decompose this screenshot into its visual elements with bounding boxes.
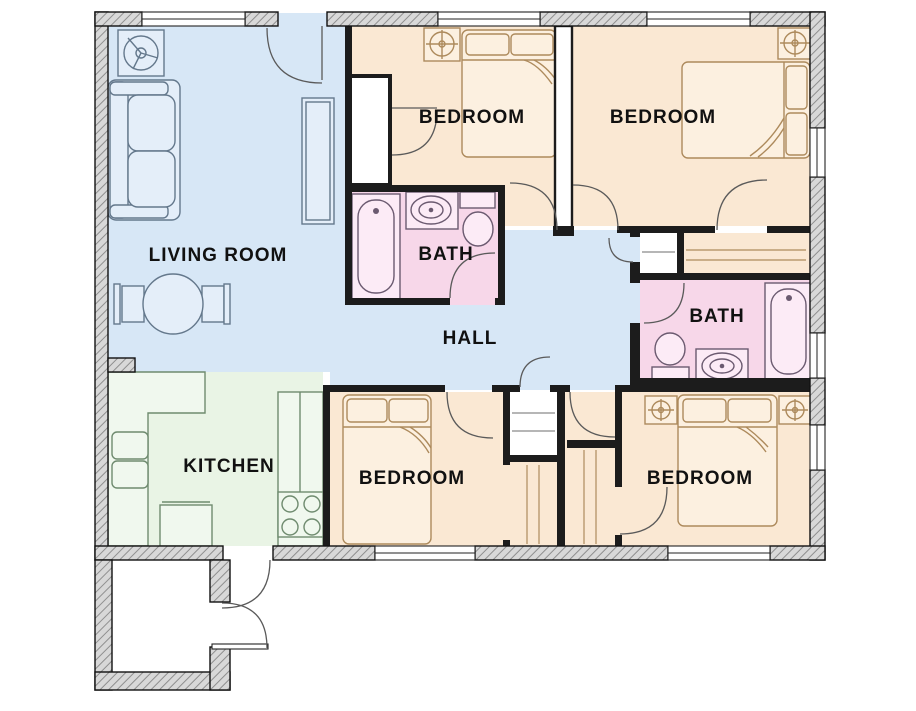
toilet — [652, 333, 689, 382]
cavity-wall — [555, 26, 572, 228]
stove-4-burners — [278, 492, 323, 537]
porch-door-arc — [222, 603, 267, 648]
kitchen-wall-stub — [108, 358, 135, 372]
bed — [678, 395, 777, 526]
bathtub — [352, 194, 400, 299]
nightstand-lamp-icon — [779, 396, 811, 424]
sofa — [108, 80, 180, 220]
toilet — [460, 192, 495, 246]
floor-plan-drawing: LIVING ROOM BEDROOM BEDROOM BATH BATH HA… — [0, 0, 916, 711]
living-room-label: LIVING ROOM — [149, 245, 288, 266]
bedroom4-label: BEDROOM — [647, 468, 753, 489]
front-door-opening-floor — [278, 13, 327, 27]
bedroom3-label: BEDROOM — [359, 468, 465, 489]
linen-closet2-floor — [510, 392, 557, 455]
island-counter — [160, 502, 212, 546]
porch-threshold-step — [212, 644, 268, 649]
bath2-label: BATH — [689, 306, 744, 327]
bed — [462, 30, 556, 157]
hall-label: HALL — [443, 328, 498, 349]
bedroom1-label: BEDROOM — [419, 107, 525, 128]
bedroom1-closet-floor — [352, 77, 392, 187]
floor-plan-page: LIVING ROOM BEDROOM BEDROOM BATH BATH HA… — [0, 0, 916, 711]
linen-closet1-floor — [640, 233, 677, 273]
ceiling-fan-icon — [118, 30, 164, 76]
bedroom2-label: BEDROOM — [610, 107, 716, 128]
porch-walls — [95, 560, 230, 690]
nightstand-lamp-icon — [645, 396, 677, 424]
bathtub — [765, 283, 812, 379]
kitchen-label: KITCHEN — [183, 456, 274, 477]
bath1-label: BATH — [418, 244, 473, 265]
sink-basin — [406, 192, 458, 229]
tall-cabinet — [302, 98, 334, 224]
ceiling-fan-icon — [778, 28, 812, 59]
ceiling-fan-icon — [424, 28, 460, 61]
